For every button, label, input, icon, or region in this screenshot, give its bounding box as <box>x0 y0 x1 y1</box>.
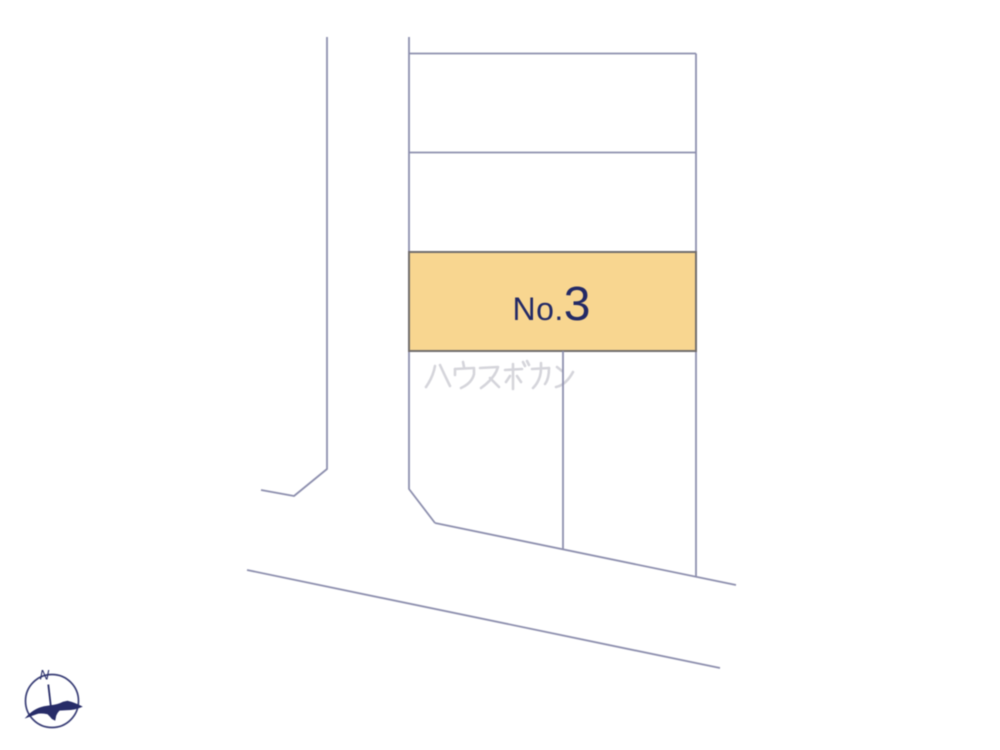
svg-text:N: N <box>40 668 50 683</box>
